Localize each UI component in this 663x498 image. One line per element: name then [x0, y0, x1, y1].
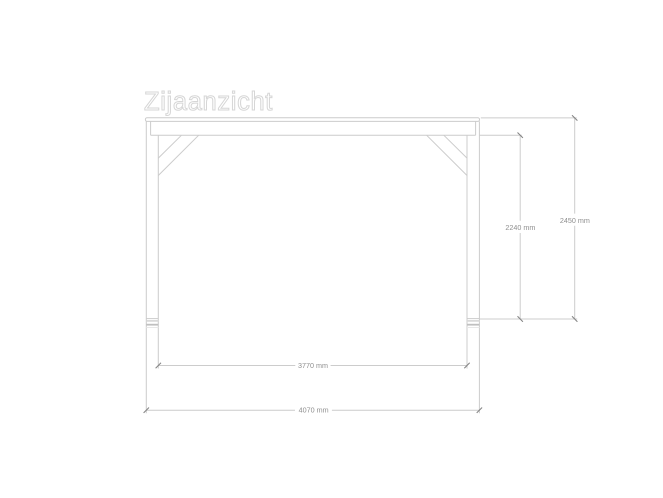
svg-text:3770 mm: 3770 mm	[298, 361, 328, 370]
svg-text:Zijaanzicht: Zijaanzicht	[144, 88, 273, 116]
svg-text:2450 mm: 2450 mm	[560, 216, 590, 225]
svg-text:4070 mm: 4070 mm	[299, 406, 329, 415]
svg-text:2240 mm: 2240 mm	[505, 223, 535, 232]
